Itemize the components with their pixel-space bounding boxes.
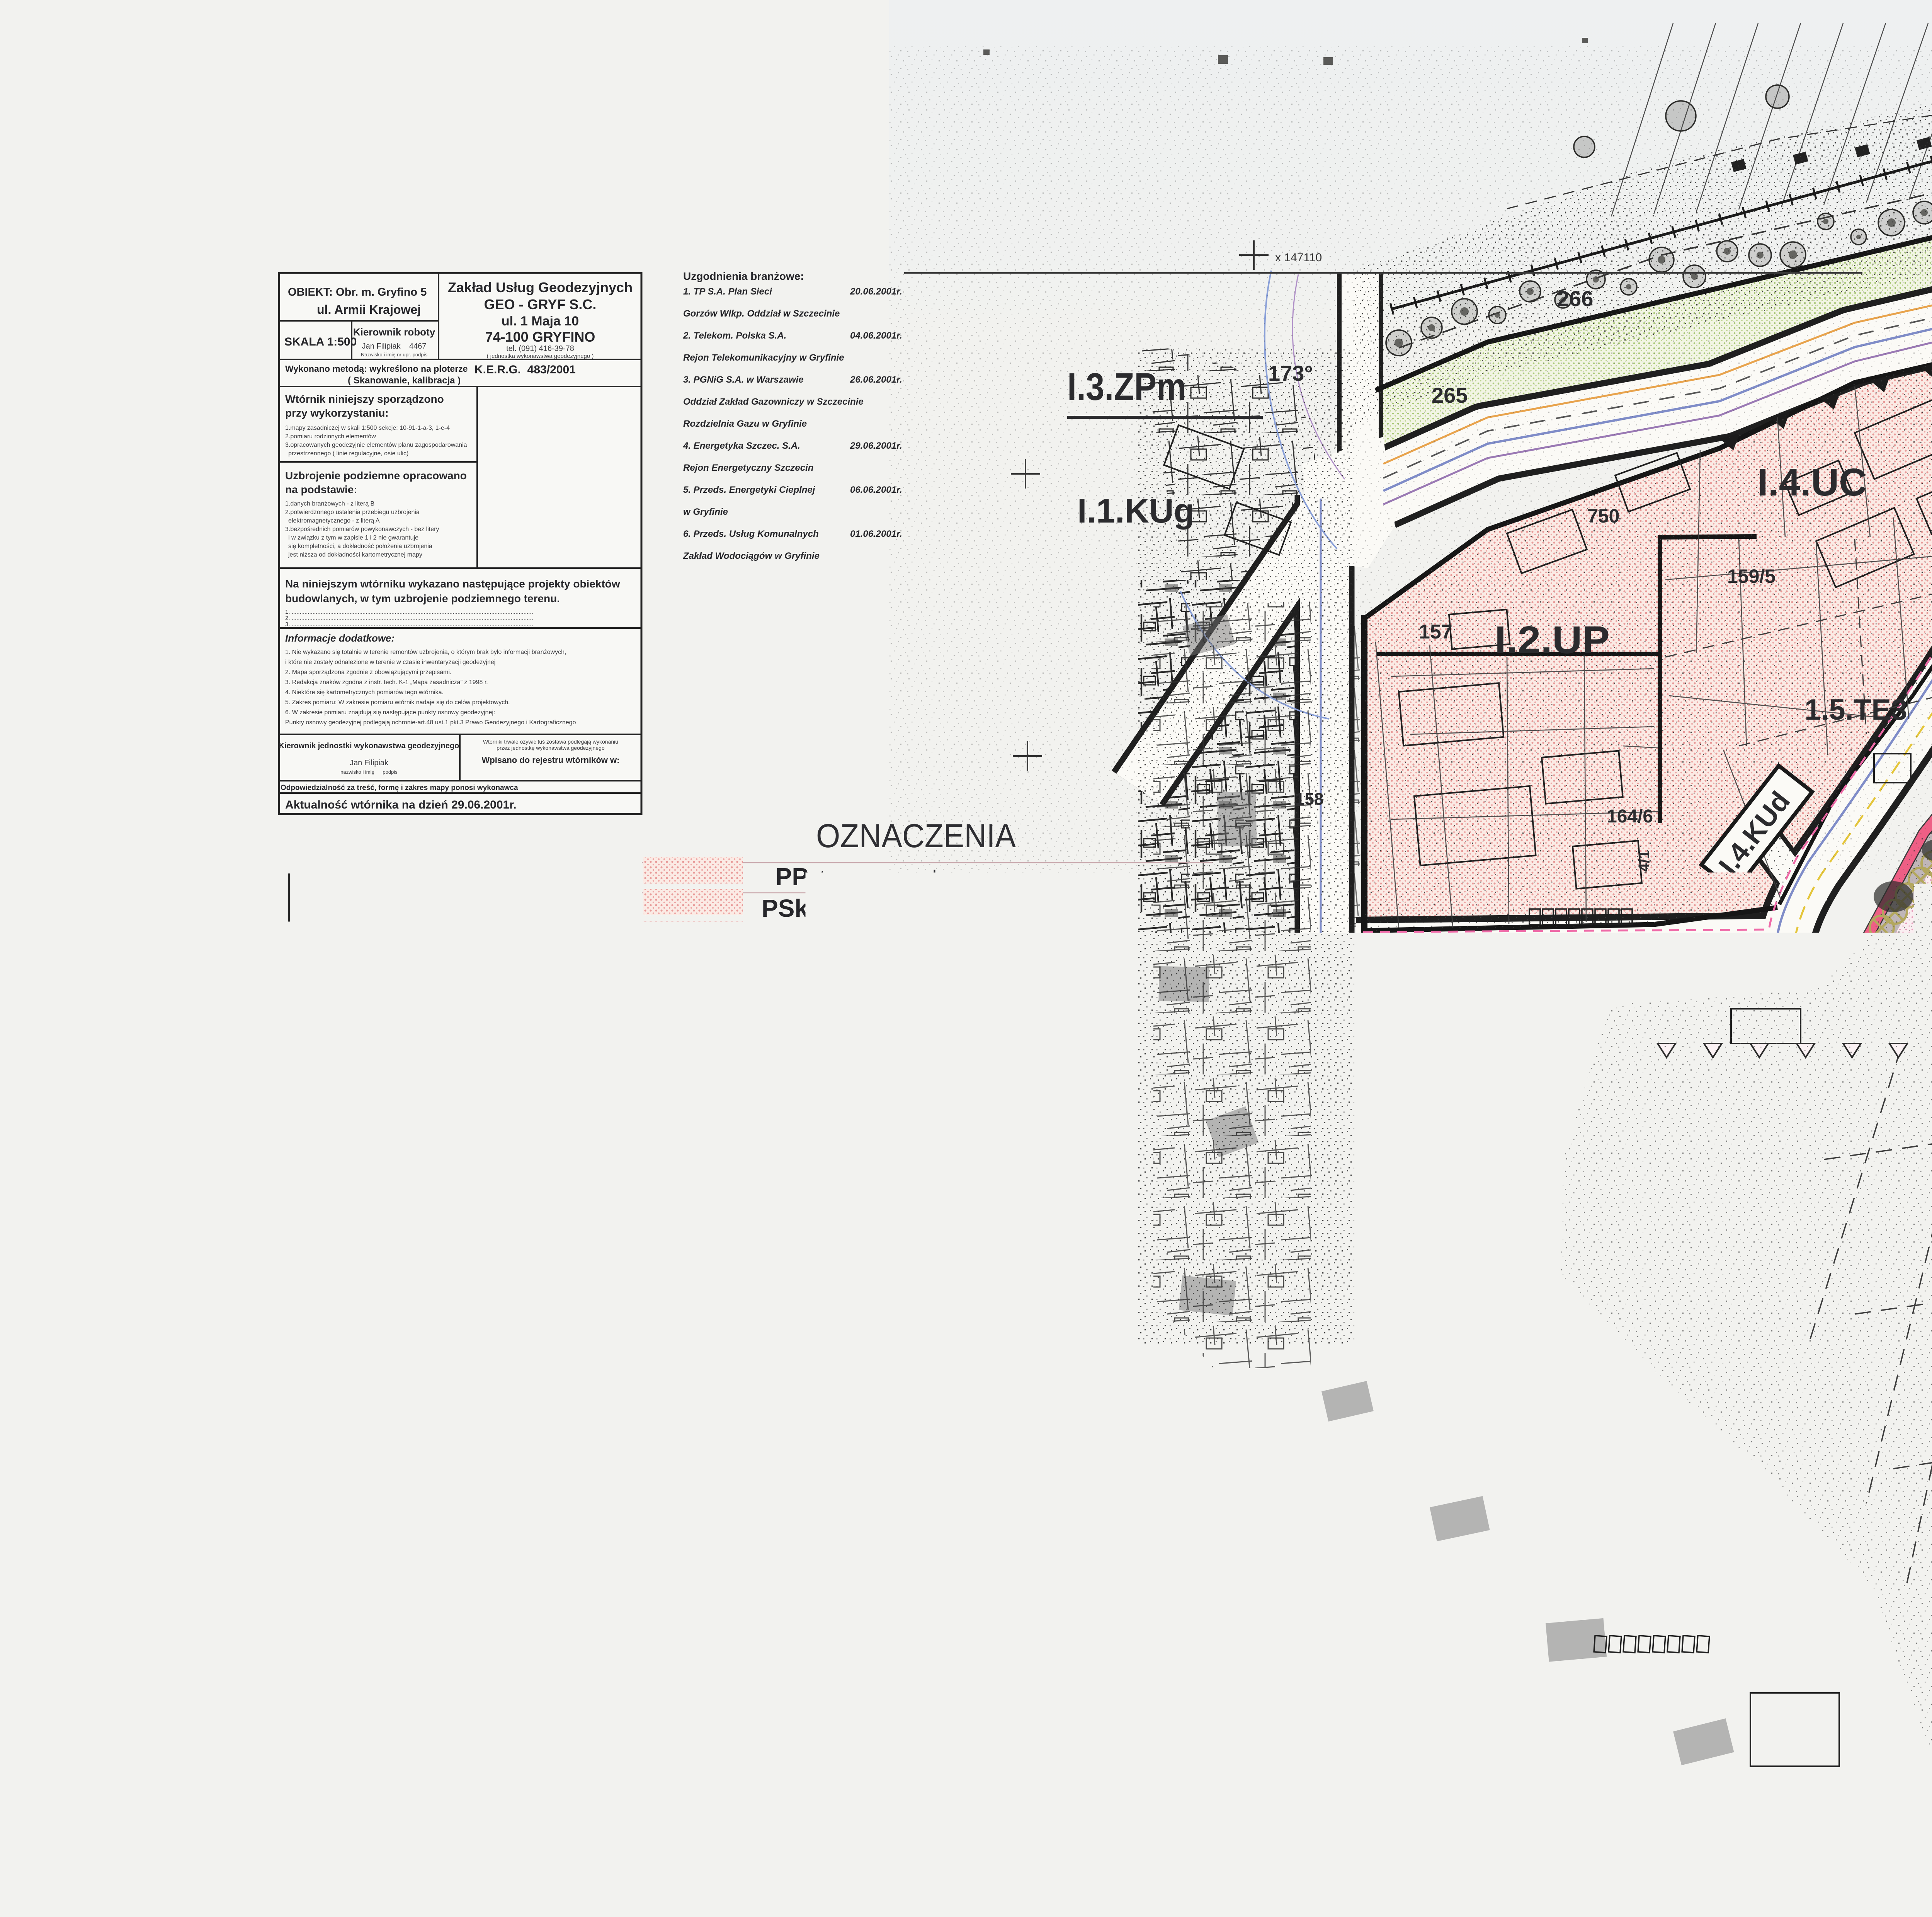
svg-text:K.E.R.G. 483/2001: K.E.R.G. 483/2001 [474,363,576,376]
svg-text:sieć wodociągowa: sieć wodociągowa [820,1618,964,1638]
svg-text:I.3.ZPm: I.3.ZPm [1067,365,1186,409]
svg-text:3. ...........................: 3. .....................................… [285,621,533,628]
svg-text:tereny urządzeń elektroenegety: tereny urządzeń elektroenegetycznych [820,1099,1124,1119]
svg-text:budowlanych, w tym uzbrojenie: budowlanych, w tym uzbrojenie podziemneg… [285,592,560,604]
svg-text:Wtórnik niniejszy sporządzono: Wtórnik niniejszy sporządzono [285,393,444,405]
svg-text:i które nie zostały odnalezion: i które nie zostały odnalezione w tereni… [285,659,495,666]
svg-text:KUd: KUd [767,1183,808,1205]
svg-text:( jednostka wykonawstwa geodez: ( jednostka wykonawstwa geodezyjnego ) [487,353,594,359]
svg-text:Na niniejszym wtórniku wykazan: Na niniejszym wtórniku wykazano następuj… [285,578,620,590]
svg-text:KK1: KK1 [759,986,808,1013]
svg-text:Kierownik roboty: Kierownik roboty [353,326,435,338]
svg-text:TE3: TE3 [763,1095,808,1123]
svg-text:3. Redakcja znaków zgodna z in: 3. Redakcja znaków zgodna z instr. tech.… [285,679,488,686]
svg-text:157: 157 [1419,621,1452,643]
svg-text:nieprzekraczalna linia zabudow: nieprzekraczalna linia zabudowy [820,1360,1076,1380]
svg-text:teren usług publicznych: teren usług publicznych [820,931,1006,951]
svg-text:Zakład Wodociągów w Gryfinie: Zakład Wodociągów w Gryfinie [683,551,820,561]
svg-text:UP: UP [774,927,808,955]
svg-text:i w związku z tym w zapisie 1: i w związku z tym w zapisie 1 i 2 nie gw… [288,535,418,541]
svg-text:I.1.KUg: I.1.KUg [1077,492,1194,530]
svg-text:Wtórniki trwale ożywić tuś zos: Wtórniki trwale ożywić tuś zostawa podle… [483,739,618,745]
svg-text:ulica główna (droga publiczna: ulica główna (droga publiczna - krajowa) [820,1132,1137,1152]
svg-text:Uzgodnienia branżowe:: Uzgodnienia branżowe: [683,270,804,282]
svg-text:wymagany szpaler zieleni izola: wymagany szpaler zieleni izolacyjnej wys… [820,1476,1182,1496]
svg-text:Jan Filipiak 4467: Jan Filipiak 4467 [362,342,427,351]
svg-text:Punkty osnowy geodezyjnej podl: Punkty osnowy geodezyjnej podlegają ochr… [285,719,576,726]
svg-text:sieć elektroenergetyczna 15 kV: sieć elektroenergetyczna 15 kV [820,1735,1067,1755]
svg-text:wymagany pas zieleni izolacyjn: wymagany pas zieleni izolacyjnej niskiej… [820,1448,1211,1468]
svg-text:1:25000: 1:25000 [551,1783,658,1816]
svg-text:SKALA 1:500: SKALA 1:500 [284,335,357,348]
svg-text:tereny usług komercyjnych: tereny usług komercyjnych [820,959,1031,979]
svg-text:ul. 1 Maja 10: ul. 1 Maja 10 [502,314,579,329]
svg-text:istniejące drzewa - do zachowa: istniejące drzewa - do zachowania lub od… [820,1506,1220,1526]
svg-text:10: 10 [1324,1789,1347,1813]
svg-text:2. ...........................: 2. .....................................… [285,615,533,621]
svg-text:Gorzów Wlkp. Oddział w Szczeci: Gorzów Wlkp. Oddział w Szczecinie [683,308,840,319]
svg-text:1.danych branżowych - z literą: 1.danych branżowych - z literą B [285,501,374,507]
svg-text:w: w [767,1616,777,1631]
svg-text:26.06.2001r.: 26.06.2001r. [850,375,902,385]
svg-text:100: 100 [1732,1789,1767,1813]
svg-text:ul. Armii Krajowej: ul. Armii Krajowej [317,303,421,317]
svg-text:Nazwisko i imię nr upr. podpis: Nazwisko i imię nr upr. podpis [361,352,427,358]
svg-text:przy wykorzystaniu:: przy wykorzystaniu: [285,407,389,419]
svg-text:teren zieleni parkowej miejski: teren zieleni parkowej miejskiej [820,1073,1065,1093]
svg-text:Aktualność wtórnika na dzień 2: Aktualność wtórnika na dzień 29.06.2001r… [285,798,517,811]
svg-text:1.5.TE3: 1.5.TE3 [1804,693,1907,726]
svg-text:3. PGNiG S.A. w Warszawie: 3. PGNiG S.A. w Warszawie [683,375,804,385]
svg-text:1. ...........................: 1. .....................................… [285,609,533,615]
svg-text:20.06.2001r.: 20.06.2001r. [850,286,902,297]
svg-text:Kierownik jednostki wykonawstw: Kierownik jednostki wykonawstwa geodezyj… [279,742,459,750]
svg-text:Autorzy : mgr inż. arch. And: Autorzy : mgr inż. arch. Andrzej Morawsk… [272,1063,285,1851]
svg-text:przestrzennego ( linie regulac: przestrzennego ( linie regulacyjne, osie… [288,450,408,457]
svg-text:60: 60 [1554,1789,1577,1813]
svg-text:3.opracowanych geodezyjnie ele: 3.opracowanych geodezyjnie elementów pla… [285,442,467,448]
svg-text:Łużycka: Łużycka [1299,878,1316,935]
svg-text:KUg: KUg [767,1131,808,1154]
svg-text:2.pomiaru rodzinnych elementów: 2.pomiaru rodzinnych elementów [285,433,376,440]
svg-text:I.1.MW: I.1.MW [1325,1460,1470,1503]
svg-text:Jan Filipiak: Jan Filipiak [350,759,389,767]
svg-text:70: 70 [1600,1789,1623,1813]
svg-text:E: E [756,1733,765,1748]
svg-text:4. Niektóre się kartometryczny: 4. Niektóre się kartometrycznych pomiaró… [285,689,444,696]
svg-text:2. Telekom. Polska S.A.: 2. Telekom. Polska S.A. [683,330,786,341]
svg-text:164/6: 164/6 [1607,806,1653,827]
svg-text:20: 20 [1370,1789,1393,1813]
svg-text:ZPm: ZPm [755,1069,808,1097]
svg-text:163/2: 163/2 [1917,1054,1932,1076]
svg-text:g: g [764,1704,772,1719]
svg-text:sieć elektroenergetyczna 0,4 k: sieć elektroenergetyczna 0,4 kV [820,1762,1072,1783]
svg-text:sieć gazowa: sieć gazowa [820,1705,918,1725]
svg-text:miejsce zmiany: miejsce zmiany [514,1452,645,1473]
svg-text:GEO - GRYF S.C.: GEO - GRYF S.C. [484,296,597,312]
svg-text:teren składów w obiektach kuba: teren składów w obiektach kubaturowych [820,898,1143,918]
svg-text:x 147110: x 147110 [1275,251,1322,264]
svg-text:GRYFINO: GRYFINO [562,1313,645,1331]
svg-text:Odpowiedzialność za treść, for: Odpowiedzialność za treść, formę i zakre… [281,784,518,792]
svg-text:1. Nie wykazano się totalnie w: 1. Nie wykazano się totalnie w terenie r… [285,649,566,655]
svg-text:elektromagnetycznego - z liter: elektromagnetycznego - z literą A [288,518,380,524]
svg-text:06.06.2001r.: 06.06.2001r. [850,485,902,495]
svg-text:173°: 173° [1268,361,1313,385]
svg-text:ORIENTACJA: ORIENTACJA [391,1789,520,1811]
svg-text:w planie: w planie [514,1476,584,1496]
svg-text:Wpisano do rejestru wtórników: Wpisano do rejestru wtórników w: [482,755,620,765]
svg-text:265: 265 [1432,383,1468,407]
svg-text:nazwisko i imię podpis: nazwisko i imię podpis [340,769,398,775]
svg-text:PP: PP [776,863,808,890]
svg-text:ulica dojazdowa (droga publicz: ulica dojazdowa (droga publiczna - gminn… [820,1183,1163,1204]
svg-text:1.mapy zasadniczej w skali 1:5: 1.mapy zasadniczej w skali 1:500 sekcje:… [285,425,450,431]
svg-text:30: 30 [1416,1789,1439,1813]
svg-text:się kompletności, a dokładność: się kompletności, a dokładność położenia… [288,543,432,550]
svg-text:w Gryfinie: w Gryfinie [683,507,728,517]
svg-text:granica zmiany w planie: granica zmiany w planie [820,1248,1010,1268]
svg-text:KS: KS [774,1015,808,1042]
svg-text:4. Energetyka Szczec. S.A.: 4. Energetyka Szczec. S.A. [683,441,800,451]
svg-text:266: 266 [1557,286,1593,311]
svg-text:2. Mapa sporządzona zgodnie z: 2. Mapa sporządzona zgodnie z obowiązują… [285,669,451,676]
svg-text:teren urządzeń transportu kole: teren urządzeń transportu kolejowego [820,989,1117,1010]
svg-text:Wykonano metodą: wykreślono na: Wykonano metodą: wykreślono na ploterze [285,364,468,374]
svg-text:0: 0 [1284,1789,1295,1813]
svg-text:KPs: KPs [769,1210,808,1232]
svg-text:OZNACZENIA INFRASTRUKTURY: OZNACZENIA INFRASTRUKTURY [802,1587,1175,1615]
svg-text:750: 750 [1587,505,1619,527]
svg-text:5. Zakres pomiaru:: 5. Zakres pomiaru: W zakresie pomiaru wt… [285,699,510,706]
svg-text:01.06.2001r.: 01.06.2001r. [850,529,902,539]
svg-text:planowana stacja transformator: planowana stacja transformatorowa [820,1791,1101,1811]
svg-text:teren urządzeń transportu samo: teren urządzeń transportu samochodowego [820,1018,1163,1039]
svg-text:164/1: 164/1 [1636,850,1653,889]
svg-text:teren przemysłu: teren przemysłu [820,867,946,887]
svg-text:29.06.2001r.: 29.06.2001r. [850,441,902,451]
svg-text:Zakład Usług Geodezyjnych: Zakład Usług Geodezyjnych [448,279,633,295]
svg-text:Oddział Zakład Gazowniczy w Sz: Oddział Zakład Gazowniczy w Szczecinie [683,397,864,407]
svg-text:ulica zbiorcza (droga publiczn: ulica zbiorcza (droga publiczna - powiat… [820,1158,1170,1178]
svg-text:tel. (091) 416-39-78: tel. (091) 416-39-78 [506,344,574,353]
svg-text:teren zabudowy mieszkaniowej w: teren zabudowy mieszkaniowej wielorodzin… [820,1047,1184,1067]
svg-text:I.9.PP/PSk/UC/KS: I.9.PP/PSk/UC/KS [1680,1183,1932,1226]
svg-text:Uzbrojenie podziemne opracowan: Uzbrojenie podziemne opracowano [285,470,467,482]
svg-text:o różnych funkcjach: o różnych funkcjach [820,1302,977,1322]
svg-text:I.8.TE3: I.8.TE3 [1680,1115,1775,1147]
svg-text:Informacje dodatkowe:: Informacje dodatkowe: [285,632,395,644]
svg-text:MW: MW [764,1044,808,1071]
svg-text:przez jednostkę wykonawstwa ge: przez jednostkę wykonawstwa geodezyjnego [497,745,605,751]
svg-text:OZNACZENIA: OZNACZENIA [816,817,1016,855]
svg-text:6. W zakresie pomiaru znajdują: 6. W zakresie pomiaru znajdują się nastę… [285,709,495,716]
svg-text:04.06.2001r.: 04.06.2001r. [850,330,902,341]
svg-text:90: 90 [1692,1789,1715,1813]
svg-text:sieć kanalizacji ściekowej: sieć kanalizacji ściekowej [820,1648,1020,1668]
svg-text:Rejon Energetyczny Szczecin: Rejon Energetyczny Szczecin [683,463,813,473]
svg-text:158: 158 [1295,790,1323,809]
svg-text:I.2.UP: I.2.UP [1495,618,1610,662]
svg-text:sieć kanalizacji deszczowej: sieć kanalizacji deszczowej [820,1677,1035,1697]
svg-text:Rejon Telekomunikacyjny w Gryf: Rejon Telekomunikacyjny w Gryfinie [683,352,844,363]
svg-text:80: 80 [1646,1789,1669,1813]
svg-text:proponowane granice wtórnego p: proponowane granice wtórnego podziału ni… [820,1389,1260,1409]
svg-text:UC: UC [773,955,808,983]
svg-text:KUz: KUz [769,1157,808,1180]
svg-text:74-100 GRYFINO: 74-100 GRYFINO [485,329,595,345]
svg-text:166/66: 166/66 [749,1417,808,1439]
svg-text:PSk: PSk [762,894,808,922]
svg-text:Rozdzielnia Gazu w Gryfinie: Rozdzielnia Gazu w Gryfinie [683,419,807,429]
svg-text:5. Przeds. Energetyki Cieplnej: 5. Przeds. Energetyki Cieplnej [683,485,816,495]
svg-text:164/8: 164/8 [1554,881,1599,901]
svg-text:( Skanowanie, kalibracja ): ( Skanowanie, kalibracja ) [348,375,461,386]
svg-text:3.bezpośrednich pomiarów powyk: 3.bezpośrednich pomiarów powykonawczych … [285,526,439,533]
svg-text:40: 40 [1462,1789,1485,1813]
svg-text:numery działek istniejących: numery działek istniejących [820,1418,1036,1438]
svg-text:OBIEKT: Obr. m. Gryfino 5: OBIEKT: Obr. m. Gryfino 5 [288,286,427,298]
svg-text:6. Przeds. Usług Komunalnych: 6. Przeds. Usług Komunalnych [683,529,819,539]
svg-text:obowiązująca linia zabudowy: obowiązująca linia zabudowy [820,1332,1049,1352]
svg-text:linie rozgraniczające tereny: linie rozgraniczające tereny [820,1274,1035,1294]
svg-text:1. TP S.A. Plan Sieci: 1. TP S.A. Plan Sieci [683,286,772,297]
svg-text:jest niższa od dokładności kar: jest niższa od dokładności kartometryczn… [288,552,422,558]
svg-text:ciąg pieszo-jezdny (droga publ: ciąg pieszo-jezdny (droga publiczna - gm… [820,1210,1182,1231]
svg-text:2.potwierdzonego ustalenia prz: 2.potwierdzonego ustalenia przebiegu uzb… [285,509,420,516]
svg-text:50: 50 [1508,1789,1531,1813]
svg-text:159/5: 159/5 [1727,565,1776,587]
svg-text:I.4.UC: I.4.UC [1757,461,1867,504]
svg-text:na podstawie:: na podstawie: [285,484,357,495]
